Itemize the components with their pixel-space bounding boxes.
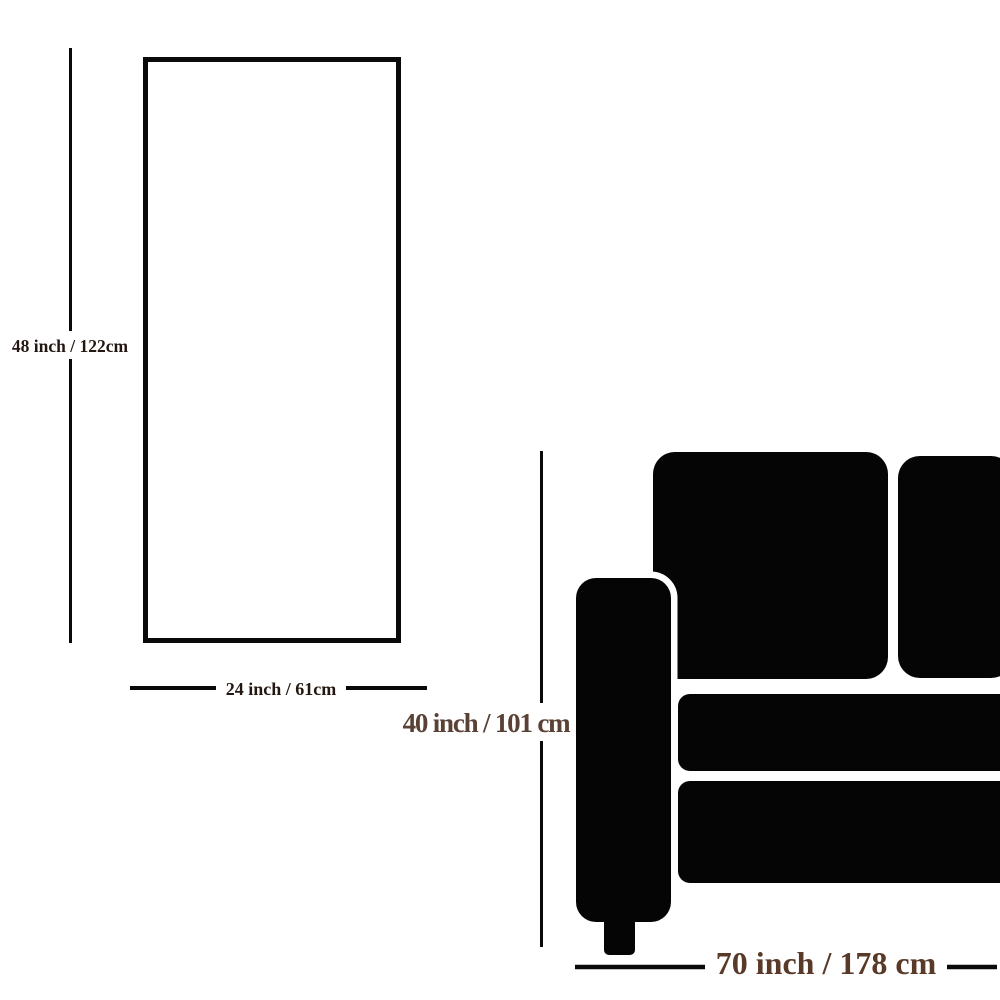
svg-text:70 inch / 178 cm: 70 inch / 178 cm: [716, 945, 937, 981]
svg-text:24 inch / 61cm: 24 inch / 61cm: [226, 679, 337, 699]
svg-text:40 inch / 101 cm: 40 inch / 101 cm: [403, 708, 572, 738]
svg-text:48 inch / 122cm: 48 inch / 122cm: [12, 336, 129, 356]
